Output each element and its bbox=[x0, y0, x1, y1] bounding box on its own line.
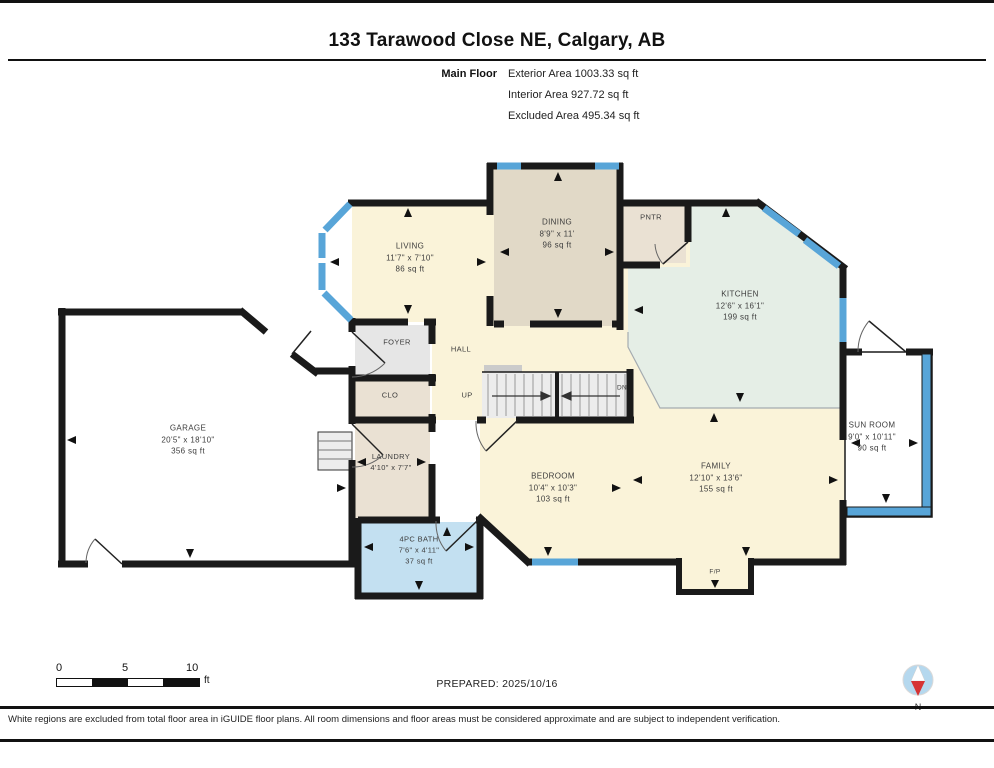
compass: N bbox=[898, 660, 942, 712]
room-fill-foyer bbox=[355, 325, 430, 376]
room-fill-sunroom bbox=[845, 352, 932, 517]
sunroom-door-leaf bbox=[869, 321, 906, 352]
floor-plan-svg bbox=[0, 0, 994, 768]
room-fill-pantry bbox=[622, 205, 686, 263]
stairs-landing bbox=[484, 365, 522, 372]
compass-icon bbox=[898, 660, 938, 700]
floor-plan-page: 133 Tarawood Close NE, Calgary, AB Main … bbox=[0, 0, 994, 768]
bottom-border bbox=[0, 739, 994, 742]
garage-rear-door-leaf bbox=[292, 331, 311, 354]
room-fill-laundry bbox=[355, 422, 430, 518]
prepared-date: PREPARED: 2025/10/16 bbox=[0, 678, 994, 690]
scale-ticks: 0 5 10 bbox=[56, 662, 226, 676]
disclaimer-text: White regions are excluded from total fl… bbox=[8, 714, 986, 725]
room-fill-dining bbox=[494, 169, 618, 326]
garage-steps bbox=[318, 432, 352, 470]
room-fill-garage bbox=[62, 312, 352, 564]
footer-divider bbox=[0, 706, 994, 709]
room-fill-closet bbox=[355, 380, 430, 418]
